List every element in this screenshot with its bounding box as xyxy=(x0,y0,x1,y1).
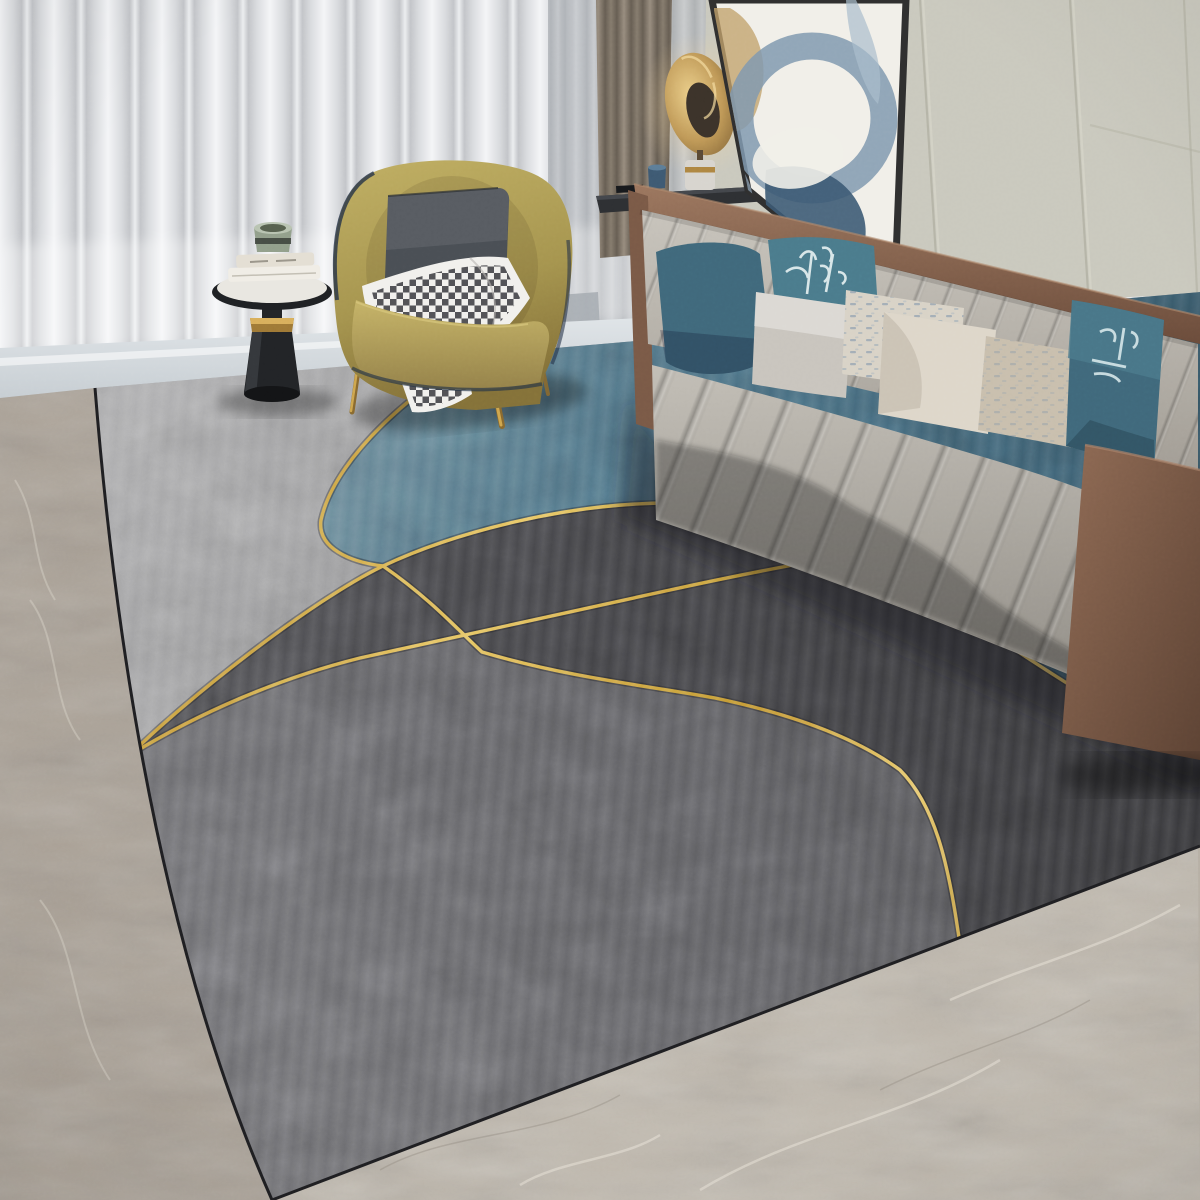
scene xyxy=(0,0,1200,1200)
living-room-photo xyxy=(0,0,1200,1200)
vignette xyxy=(0,0,1200,1200)
